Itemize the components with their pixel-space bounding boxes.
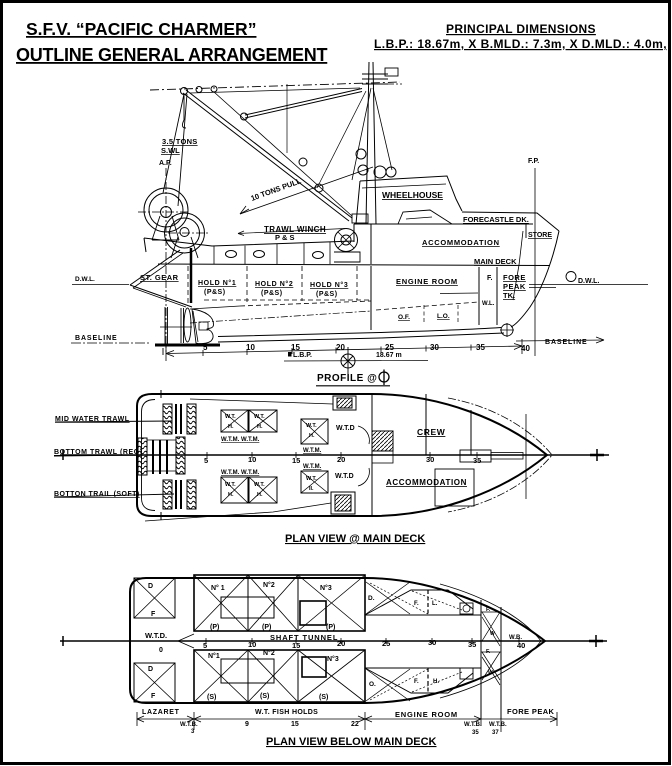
svg-text:W.T.M. W.T.M.: W.T.M. W.T.M. bbox=[221, 437, 260, 443]
svg-text:18.67 m: 18.67 m bbox=[376, 352, 402, 359]
svg-text:35: 35 bbox=[476, 343, 485, 352]
svg-text:N°3: N°3 bbox=[320, 584, 332, 592]
svg-text:W.T.: W.T. bbox=[254, 414, 265, 420]
svg-text:3.5 TONS: 3.5 TONS bbox=[162, 137, 198, 146]
svg-text:N°2: N°2 bbox=[263, 649, 275, 657]
svg-text:OUTLINE GENERAL ARRANGEMENT: OUTLINE GENERAL ARRANGEMENT bbox=[16, 45, 328, 65]
svg-text:O.: O. bbox=[369, 681, 376, 688]
svg-text:22: 22 bbox=[351, 721, 359, 728]
svg-text:N° 1: N° 1 bbox=[211, 584, 225, 592]
svg-text:L.B.P.: 18.67m, X B.MLD.: 7.3m: L.B.P.: 18.67m, X B.MLD.: 7.3m, X D.MLD.… bbox=[374, 37, 667, 51]
svg-text:PROFILE @: PROFILE @ bbox=[317, 373, 377, 384]
svg-text:W: W bbox=[490, 631, 495, 637]
svg-text:D.W.L.: D.W.L. bbox=[578, 278, 599, 285]
svg-text:15: 15 bbox=[292, 641, 300, 650]
svg-text:ENGINE ROOM: ENGINE ROOM bbox=[396, 277, 458, 286]
svg-text:PRINCIPAL DIMENSIONS: PRINCIPAL DIMENSIONS bbox=[446, 22, 596, 36]
svg-text:FORE: FORE bbox=[503, 273, 526, 282]
svg-text:10: 10 bbox=[248, 640, 256, 649]
svg-text:LAZARET: LAZARET bbox=[142, 709, 180, 716]
svg-text:ST. GEAR: ST. GEAR bbox=[140, 273, 179, 282]
svg-text:D: D bbox=[148, 666, 153, 673]
svg-text:A.P.: A.P. bbox=[159, 160, 172, 167]
svg-text:35: 35 bbox=[468, 640, 476, 649]
svg-text:F.P.: F.P. bbox=[528, 158, 539, 165]
svg-text:W.T.M.: W.T.M. bbox=[303, 464, 322, 470]
svg-text:H.: H. bbox=[228, 424, 234, 430]
svg-text:F.: F. bbox=[487, 275, 493, 282]
svg-text:40: 40 bbox=[517, 641, 525, 650]
svg-text:WHEELHOUSE: WHEELHOUSE bbox=[382, 190, 443, 200]
svg-text:W.T.M.: W.T.M. bbox=[303, 448, 322, 454]
svg-text:37: 37 bbox=[492, 730, 499, 736]
svg-text:TRAWL WINCH: TRAWL WINCH bbox=[264, 225, 326, 234]
svg-text:25: 25 bbox=[385, 343, 394, 352]
svg-text:D.: D. bbox=[368, 595, 375, 602]
svg-text:W.T.D: W.T.D bbox=[335, 473, 354, 480]
svg-text:S.F.V. “PACIFIC CHARMER”: S.F.V. “PACIFIC CHARMER” bbox=[26, 19, 256, 39]
svg-text:BOTTON TRAIL (SOFT): BOTTON TRAIL (SOFT) bbox=[54, 491, 140, 498]
svg-text:BASELINE: BASELINE bbox=[545, 339, 588, 346]
svg-text:15: 15 bbox=[291, 721, 299, 728]
svg-text:PLAN VIEW BELOW MAIN DECK: PLAN VIEW BELOW MAIN DECK bbox=[266, 736, 437, 748]
svg-text:F.: F. bbox=[486, 649, 491, 655]
svg-text:H.: H. bbox=[257, 492, 263, 498]
svg-text:15: 15 bbox=[291, 343, 300, 352]
svg-text:20: 20 bbox=[336, 343, 345, 352]
svg-text:F.: F. bbox=[486, 607, 491, 613]
svg-text:BASELINE: BASELINE bbox=[75, 335, 118, 342]
svg-text:D.W.L.: D.W.L. bbox=[75, 276, 95, 283]
svg-text:30: 30 bbox=[426, 455, 434, 464]
svg-text:II.: II. bbox=[309, 486, 314, 492]
svg-text:(P): (P) bbox=[210, 624, 219, 631]
svg-text:W.L.: W.L. bbox=[482, 301, 495, 307]
svg-text:20: 20 bbox=[337, 455, 345, 464]
svg-text:(S): (S) bbox=[319, 694, 328, 701]
svg-text:W.T.: W.T. bbox=[306, 476, 317, 482]
svg-text:10: 10 bbox=[248, 455, 256, 464]
svg-text:40: 40 bbox=[521, 344, 530, 353]
svg-text:F.: F. bbox=[414, 679, 419, 685]
svg-text:H.: H. bbox=[309, 433, 315, 439]
svg-text:W.T. FISH HOLDS: W.T. FISH HOLDS bbox=[255, 709, 318, 716]
svg-text:BOTTOM TRAWL (REG): BOTTOM TRAWL (REG) bbox=[54, 449, 143, 456]
svg-text:(P): (P) bbox=[326, 624, 335, 631]
svg-text:MAIN DECK: MAIN DECK bbox=[474, 257, 517, 266]
svg-text:H.: H. bbox=[228, 492, 234, 498]
svg-text:W.T.B.: W.T.B. bbox=[180, 722, 198, 728]
svg-text:L.O.: L.O. bbox=[437, 313, 450, 320]
svg-text:W.T.B.: W.T.B. bbox=[489, 722, 507, 728]
svg-text:TK.: TK. bbox=[503, 291, 515, 300]
svg-text:HOLD N°1: HOLD N°1 bbox=[198, 279, 236, 287]
svg-text:P & S: P & S bbox=[275, 233, 294, 242]
svg-text:STORE: STORE bbox=[528, 232, 552, 239]
svg-text:N°1: N°1 bbox=[208, 652, 220, 660]
svg-text:W.T.: W.T. bbox=[225, 414, 236, 420]
svg-text:(S): (S) bbox=[260, 693, 269, 700]
svg-text:HOLD N°2: HOLD N°2 bbox=[255, 280, 293, 288]
svg-text:SHAFT TUNNEL: SHAFT TUNNEL bbox=[270, 633, 338, 642]
svg-text:35: 35 bbox=[473, 456, 481, 465]
svg-text:FORE PEAK: FORE PEAK bbox=[507, 707, 555, 716]
svg-text:ENGINE ROOM: ENGINE ROOM bbox=[395, 710, 458, 719]
svg-text:O.F.: O.F. bbox=[398, 314, 410, 321]
svg-text:H.: H. bbox=[433, 679, 439, 685]
svg-text:FORECASTLE DK.: FORECASTLE DK. bbox=[463, 215, 529, 224]
svg-text:35: 35 bbox=[472, 730, 479, 736]
svg-text:W.T.D.: W.T.D. bbox=[145, 631, 167, 640]
svg-text:N°2: N°2 bbox=[263, 581, 275, 589]
svg-text:D: D bbox=[148, 583, 153, 590]
svg-text:CREW: CREW bbox=[417, 427, 446, 437]
svg-text:30: 30 bbox=[428, 638, 436, 647]
svg-text:MID WATER TRAWL: MID WATER TRAWL bbox=[55, 416, 130, 423]
svg-text:W.T.: W.T. bbox=[225, 482, 236, 488]
svg-text:(P): (P) bbox=[262, 624, 271, 631]
svg-text:W.T.M. W.T.M.: W.T.M. W.T.M. bbox=[221, 470, 260, 476]
svg-text:5: 5 bbox=[203, 641, 207, 650]
svg-text:L.B.P.: L.B.P. bbox=[293, 352, 312, 359]
svg-text:PEAK: PEAK bbox=[503, 282, 526, 291]
svg-text:20: 20 bbox=[337, 639, 345, 648]
svg-text:W: W bbox=[488, 670, 493, 676]
svg-text:S.WL: S.WL bbox=[161, 146, 180, 155]
svg-text:L.: L. bbox=[432, 601, 438, 607]
svg-text:25: 25 bbox=[382, 639, 390, 648]
svg-text:H.: H. bbox=[257, 424, 263, 430]
svg-text:(P&S): (P&S) bbox=[261, 290, 283, 297]
svg-text:N°3: N°3 bbox=[327, 655, 339, 663]
svg-text:30: 30 bbox=[430, 343, 439, 352]
svg-text:F: F bbox=[151, 693, 156, 700]
svg-text:F.: F. bbox=[414, 601, 419, 607]
svg-text:10: 10 bbox=[246, 343, 255, 352]
svg-text:HOLD N°3: HOLD N°3 bbox=[310, 281, 348, 289]
svg-text:PLAN VIEW @ MAIN DECK: PLAN VIEW @ MAIN DECK bbox=[285, 533, 425, 545]
svg-text:W.T.: W.T. bbox=[254, 482, 265, 488]
svg-text:W.T.B.: W.T.B. bbox=[464, 722, 482, 728]
svg-text:(P&S): (P&S) bbox=[204, 289, 226, 296]
svg-text:0: 0 bbox=[159, 647, 163, 654]
svg-text:W.T.: W.T. bbox=[306, 423, 317, 429]
svg-text:ACCOMMODATION: ACCOMMODATION bbox=[386, 478, 467, 487]
svg-text:15: 15 bbox=[292, 456, 300, 465]
svg-text:(P&S): (P&S) bbox=[316, 291, 338, 298]
svg-text:ACCOMMODATION: ACCOMMODATION bbox=[422, 238, 500, 247]
svg-text:5: 5 bbox=[204, 456, 208, 465]
svg-text:W.T.D: W.T.D bbox=[336, 425, 355, 432]
svg-text:5: 5 bbox=[203, 343, 208, 352]
svg-text:9: 9 bbox=[245, 721, 249, 728]
svg-text:(S): (S) bbox=[207, 694, 216, 701]
svg-text:F: F bbox=[151, 611, 156, 618]
